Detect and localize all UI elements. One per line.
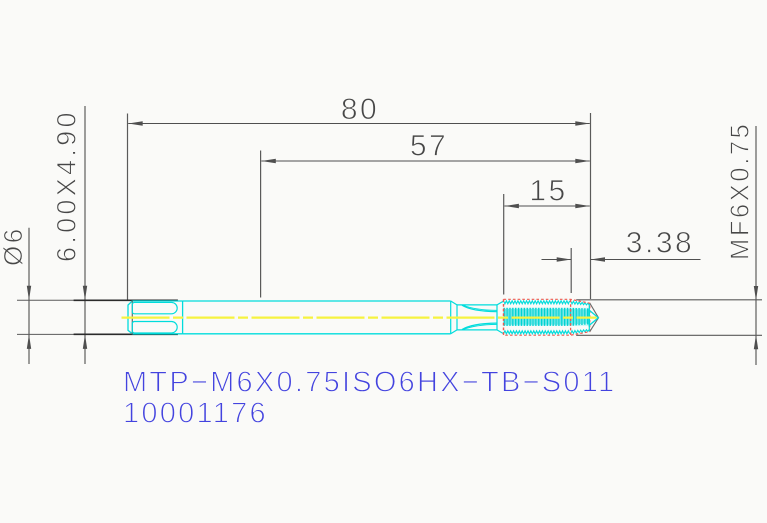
svg-text:15: 15 — [529, 175, 567, 208]
svg-text:3.38: 3.38 — [626, 227, 694, 260]
svg-text:MF6X0.75: MF6X0.75 — [727, 122, 755, 260]
svg-text:80: 80 — [341, 93, 379, 126]
svg-text:Ø6: Ø6 — [0, 226, 28, 266]
svg-text:57: 57 — [410, 130, 448, 163]
svg-text:10001176: 10001176 — [123, 398, 268, 430]
svg-text:MTP−M6X0.75ISO6HX−TB−S011: MTP−M6X0.75ISO6HX−TB−S011 — [123, 367, 616, 399]
svg-text:6.00X4.90: 6.00X4.90 — [52, 109, 82, 262]
